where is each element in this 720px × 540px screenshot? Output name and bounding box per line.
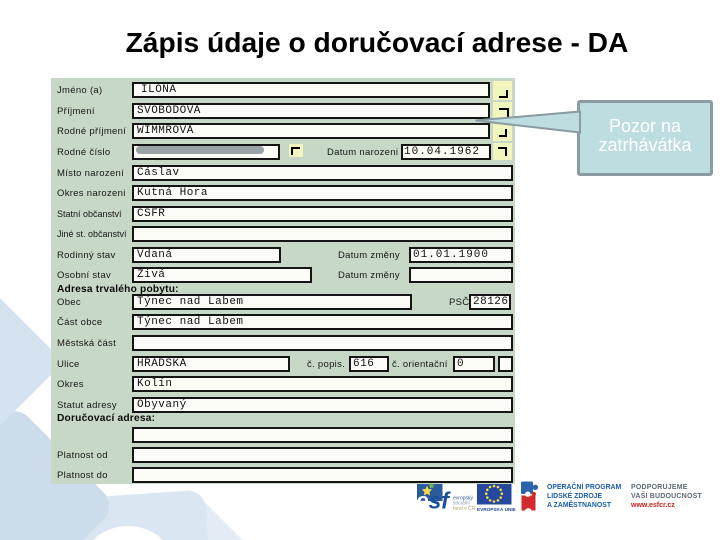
svg-text:fond v ČR: fond v ČR (453, 505, 476, 512)
svg-text:EVROPSKÁ UNIE: EVROPSKÁ UNIE (477, 506, 516, 512)
svg-text:sf: sf (429, 488, 452, 514)
